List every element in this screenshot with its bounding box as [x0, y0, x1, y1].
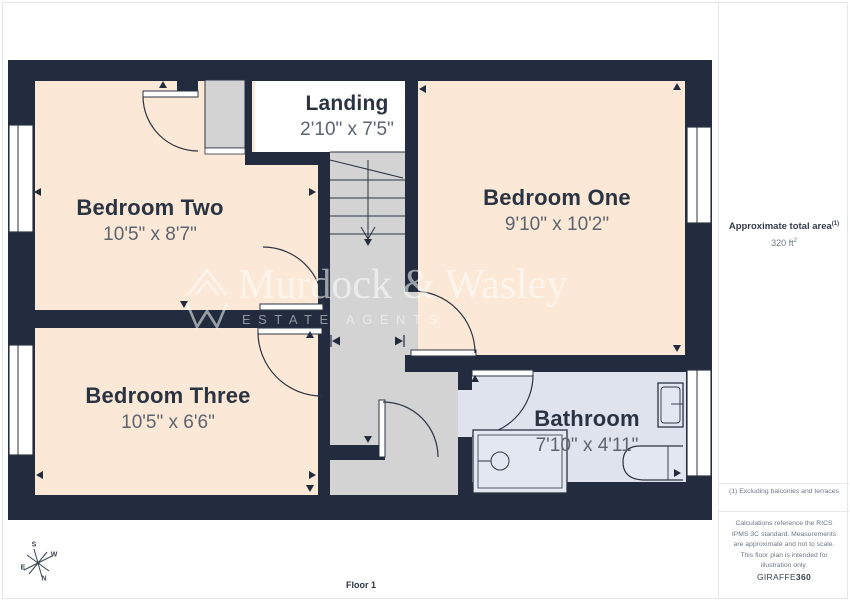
bedroom-one-doorway: [405, 292, 418, 355]
sidebar-divider: [719, 511, 849, 512]
room-dimensions: 9'10" x 10'2": [483, 214, 631, 236]
bedroom-two-label: Bedroom Two 10'5" x 8'7": [76, 195, 223, 246]
bathroom-label: Bathroom 7'10" x 4'11": [534, 406, 640, 457]
window-bedroom-two: [9, 125, 33, 232]
disclaimer-text: Calculations reference the RICS IPMS 3C …: [729, 519, 839, 572]
hall-floor: [330, 372, 458, 495]
bedroom-three-label: Bedroom Three 10'5" x 6'6": [85, 383, 250, 434]
room-dimensions: 7'10" x 4'11": [534, 435, 640, 457]
giraffe360-brand: GIRAFFE360: [719, 572, 849, 582]
window-bedroom-one: [687, 127, 711, 223]
room-name: Bedroom Three: [85, 383, 250, 409]
window-bedroom-three: [9, 345, 33, 455]
compass-north-label: N: [41, 576, 46, 583]
landing-label: Landing 2'10" x 7'5": [300, 92, 394, 141]
approximate-area-value: 320 ft2: [719, 238, 849, 248]
bedroom-one-label: Bedroom One 9'10" x 10'2": [483, 185, 631, 236]
closet-floor: [205, 80, 245, 148]
area-value-superscript: 2: [794, 238, 797, 244]
brand-bold-text: 360: [796, 572, 811, 582]
compass-icon: [24, 549, 52, 577]
room-name: Bedroom One: [483, 185, 631, 211]
floor-label: Floor 1: [346, 580, 376, 590]
compass-south-label: S: [32, 542, 37, 549]
disclaimer: Calculations reference the RICS IPMS 3C …: [719, 519, 849, 572]
room-dimensions: 10'5" x 8'7": [76, 224, 223, 246]
area-value-text: 320 ft: [771, 238, 794, 248]
compass-east-label: E: [21, 565, 26, 572]
window-bathroom: [687, 370, 711, 476]
sidebar-divider: [719, 483, 849, 484]
floor-plan-page: { "rooms": [ {"name": "Bedroom Two", "di…: [0, 0, 850, 601]
area-label-superscript: (1): [832, 221, 839, 227]
room-dimensions: 2'10" x 7'5": [300, 119, 394, 141]
area-footnote: (1) Excluding balconies and terraces: [719, 488, 849, 495]
brand-normal-text: GIRAFFE: [757, 572, 796, 582]
room-name: Bathroom: [534, 406, 640, 432]
bathroom-doorway: [458, 390, 472, 437]
room-dimensions: 10'5" x 6'6": [85, 412, 250, 434]
approximate-area-label: Approximate total area(1): [719, 221, 849, 232]
room-name: Bedroom Two: [76, 195, 223, 221]
area-label-text: Approximate total area: [729, 221, 832, 232]
compass-west-label: W: [51, 552, 58, 559]
closet-opening: [205, 148, 245, 154]
toilet-icon: [658, 383, 683, 427]
room-name: Landing: [300, 92, 394, 116]
